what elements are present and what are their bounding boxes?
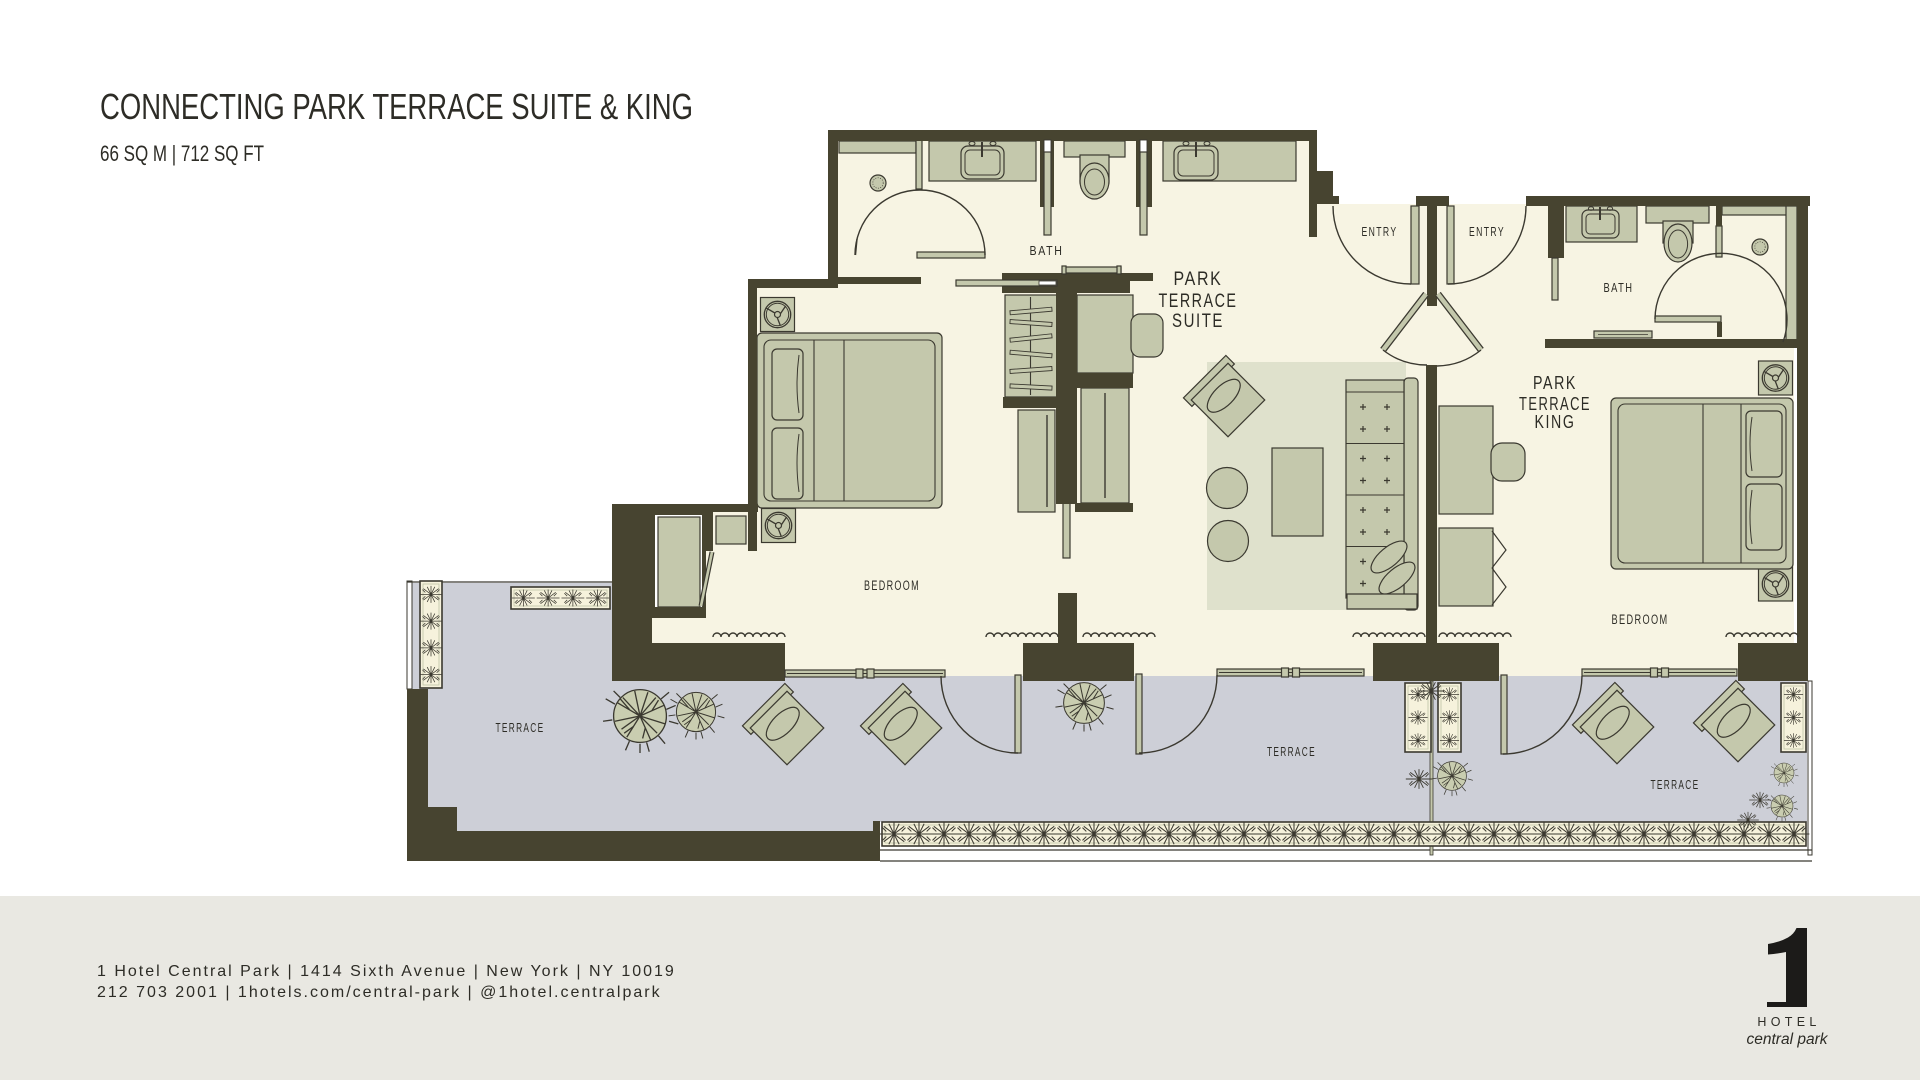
svg-text:CONNECTING PARK TERRACE SUITE: CONNECTING PARK TERRACE SUITE & KING bbox=[100, 86, 693, 127]
svg-text:HOTEL: HOTEL bbox=[1757, 1015, 1820, 1029]
svg-text:PARK: PARK bbox=[1533, 373, 1577, 393]
svg-text:TERRACE: TERRACE bbox=[1267, 745, 1316, 759]
svg-text:TERRACE: TERRACE bbox=[496, 721, 545, 735]
svg-text:TERRACE: TERRACE bbox=[1159, 291, 1238, 312]
svg-text:ENTRY: ENTRY bbox=[1469, 225, 1505, 239]
svg-text:1 Hotel Central Park | 1414 Si: 1 Hotel Central Park | 1414 Sixth Avenue… bbox=[97, 963, 676, 980]
svg-text:KING: KING bbox=[1535, 412, 1576, 432]
svg-text:212 703 2001 | 1hotels.com/cen: 212 703 2001 | 1hotels.com/central-park … bbox=[97, 984, 662, 1001]
svg-text:BATH: BATH bbox=[1030, 243, 1064, 258]
svg-text:ENTRY: ENTRY bbox=[1362, 225, 1398, 239]
svg-text:BEDROOM: BEDROOM bbox=[1612, 612, 1669, 627]
svg-text:BEDROOM: BEDROOM bbox=[864, 578, 920, 593]
svg-text:SUITE: SUITE bbox=[1172, 311, 1224, 332]
svg-text:66 SQ M | 712 SQ FT: 66 SQ M | 712 SQ FT bbox=[100, 141, 264, 166]
svg-text:BATH: BATH bbox=[1604, 280, 1634, 295]
svg-text:TERRACE: TERRACE bbox=[1651, 778, 1700, 792]
svg-text:TERRACE: TERRACE bbox=[1519, 394, 1591, 414]
svg-text:central park: central park bbox=[1747, 1031, 1829, 1048]
svg-text:PARK: PARK bbox=[1174, 269, 1223, 290]
